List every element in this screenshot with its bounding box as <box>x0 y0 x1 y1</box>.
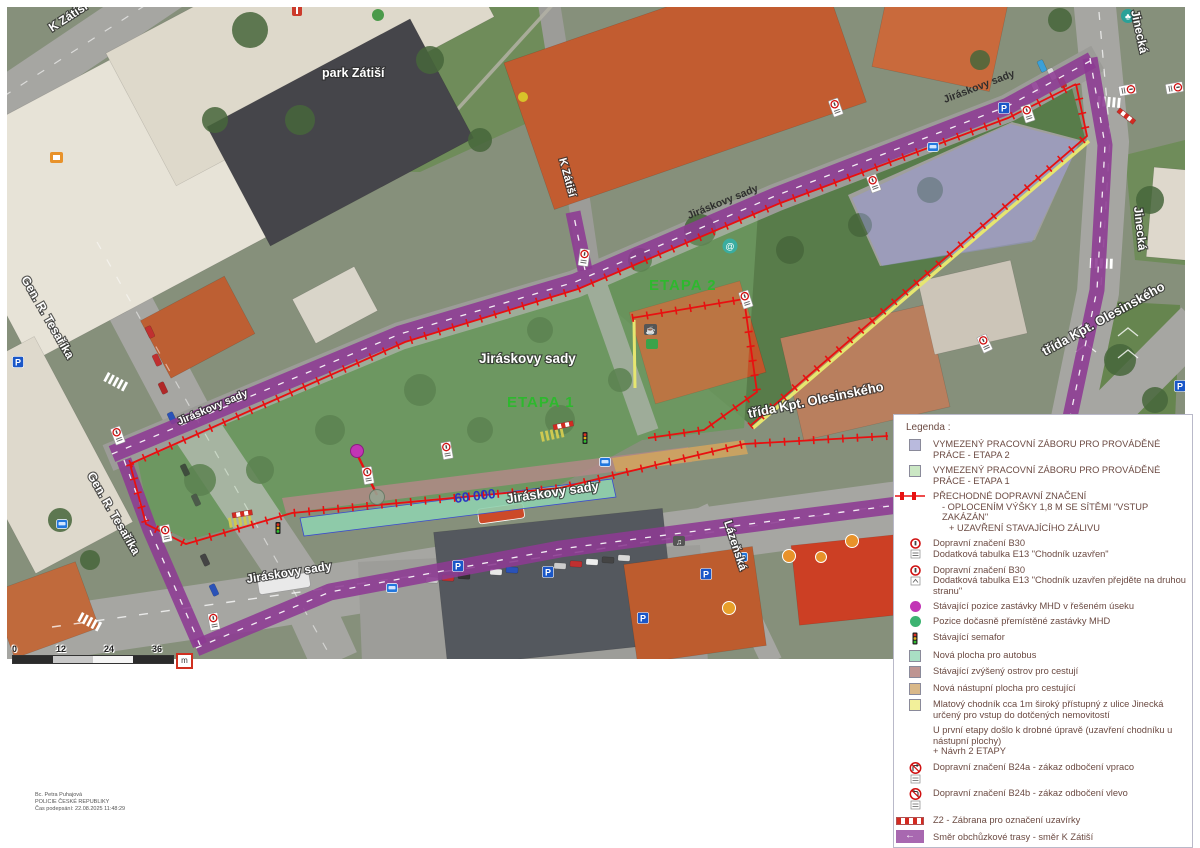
legend-text: - OPLOCENÍM VÝŠKY 1,8 M SE SÍTĚMI "VSTUP… <box>933 502 1186 523</box>
relocated-stop-dot <box>910 616 921 627</box>
flower-poi-icon <box>518 92 528 102</box>
existing-bus-stop-marker <box>351 445 364 458</box>
etapa1-swatch <box>909 465 921 477</box>
scale-tick: 36 <box>152 644 162 654</box>
scale-bar: 0 12 24 36 m <box>12 644 197 670</box>
legend-item: Z2 - Zábrana pro označení uzavírky <box>894 815 1186 826</box>
legend-item: PŘECHODNÉ DOPRAVNÍ ZNAČENÍ - OPLOCENÍM V… <box>894 491 1186 533</box>
key-service-icon <box>646 339 658 349</box>
legend-text: Stávající semafor <box>933 632 1186 643</box>
legend-item: ← Směr obchůzkové trasy - směr K Zátiší <box>894 830 1186 843</box>
legend-item: Nová nástupní plocha pro cestující <box>904 683 1186 695</box>
scale-bar-strip <box>12 655 174 664</box>
legend-text: Dopravní značení B30 <box>933 538 1186 549</box>
b24b-sign-icon <box>908 788 923 810</box>
legend-title: Legenda : <box>906 422 1186 433</box>
boarding-swatch <box>909 683 921 695</box>
legend-text: Dopravní značení B30 <box>933 565 1186 576</box>
bus-area-swatch <box>909 650 921 662</box>
legend-text: + UZAVŘENÍ STAVAJÍCÍHO ZÁLIVU <box>933 523 1186 534</box>
park-label: Jiráskovy sady <box>479 351 576 366</box>
legend-item: Mlatový chodník cca 1m široký přístupný … <box>904 699 1186 720</box>
legend-item: Stávající semafor <box>904 632 1186 645</box>
scale-tick: 24 <box>104 644 114 654</box>
pub-icon <box>783 550 796 563</box>
smiley-poi-icon <box>723 602 736 615</box>
pub-icon <box>816 552 827 563</box>
b24a-sign-icon <box>908 762 923 784</box>
existing-stop-dot <box>910 601 921 612</box>
snail-glyph: @ <box>725 242 734 252</box>
legend-text: Nová nástupní plocha pro cestující <box>933 683 1186 694</box>
legend-text: Stávající pozice zastávky MHD v řešeném … <box>933 601 1186 612</box>
coffee-glyph: ☕ <box>646 325 656 335</box>
legend-text: Stávající zvýšený ostrov pro cestují <box>933 666 1186 677</box>
legend-item: Pozice dočasně přemístěné zastávky MHD <box>904 616 1186 627</box>
scale-tick: 0 <box>12 644 17 654</box>
legend-text: U první etapy došlo k drobné úpravě (uza… <box>933 725 1186 746</box>
detour-direction-icon: ← <box>896 830 924 843</box>
legend-text: VYMEZENÝ PRACOVNÍ ZÁBORU PRO PROVÁDĚNÉ P… <box>933 465 1186 486</box>
music-glyph: ♫ <box>676 538 682 547</box>
legend-item: U první etapy došlo k drobné úpravě (uza… <box>904 725 1186 757</box>
legend-item: VYMEZENÝ PRACOVNÍ ZÁBORU PRO PROVÁDĚNÉ P… <box>904 439 1186 460</box>
signature-timestamp: Čas podepsání: 22.08.2025 11:48:29 <box>35 806 125 813</box>
legend-text: VYMEZENÝ PRACOVNÍ ZÁBORU PRO PROVÁDĚNÉ P… <box>933 439 1186 460</box>
yellow-footpath <box>634 320 635 388</box>
legend-text: Dopravní značení B24b - zákaz odbočení v… <box>933 788 1186 799</box>
legend-item: Dopravní značení B24b - zákaz odbočení v… <box>904 788 1186 810</box>
legend-text: Dopravní značení B24a - zákaz odbočení v… <box>933 762 1186 773</box>
scale-tick: 12 <box>56 644 66 654</box>
traffic-light-legend-icon <box>912 632 918 645</box>
legend-item: Dopravní značení B30 Dodatková tabulka E… <box>904 538 1186 560</box>
etapa2-label: ETAPA 2 <box>649 277 717 294</box>
scale-unit: m <box>176 653 193 669</box>
green-poi-icon <box>372 9 384 21</box>
legend-item: VYMEZENÝ PRACOVNÍ ZÁBORU PRO PROVÁDĚNÉ P… <box>904 465 1186 486</box>
legend-item: Dopravní značení B30 Dodatková tabulka E… <box>904 565 1186 597</box>
legend-panel: Legenda : VYMEZENÝ PRACOVNÍ ZÁBORU PRO P… <box>893 414 1193 848</box>
legend-item: Dopravní značení B24a - zákaz odbočení v… <box>904 762 1186 784</box>
fence-line-icon <box>895 491 925 501</box>
b30-sign-icon <box>909 565 922 587</box>
legend-text: Dodatková tabulka E13 "Chodník uzavřen p… <box>933 575 1186 596</box>
traffic-light-icon <box>276 522 281 534</box>
etapa2-swatch <box>909 439 921 451</box>
island-swatch <box>909 666 921 678</box>
pub-icon <box>846 535 859 548</box>
legend-item: Stávající zvýšený ostrov pro cestují <box>904 666 1186 678</box>
legend-text: Z2 - Zábrana pro označení uzavírky <box>933 815 1186 826</box>
plan-document-page: P <box>0 0 1200 848</box>
legend-text: Mlatový chodník cca 1m široký přístupný … <box>933 699 1186 720</box>
legend-text: Směr obchůzkové trasy - směr K Zátiší <box>933 832 1186 843</box>
legend-item: Nová plocha pro autobus <box>904 650 1186 662</box>
legend-text: Pozice dočasně přemístěné zastávky MHD <box>933 616 1186 627</box>
park-label: park Zátiší <box>322 66 385 80</box>
legend-item: Stávající pozice zastávky MHD v řešeném … <box>904 601 1186 612</box>
traffic-light-icon <box>583 432 588 444</box>
legend-text: Nová plocha pro autobus <box>933 650 1186 661</box>
b30-sign-icon <box>909 538 922 560</box>
signature-block: Bc. Petra Puhajová POLICIE ČESKÉ REPUBLI… <box>35 792 125 813</box>
legend-text: Dodatková tabulka E13 "Chodník uzavřen" <box>933 549 1186 560</box>
footpath-swatch <box>909 699 921 711</box>
etapa1-label: ETAPA 1 <box>507 394 575 411</box>
legend-text: PŘECHODNÉ DOPRAVNÍ ZNAČENÍ <box>933 491 1186 502</box>
relocated-bus-stop-marker <box>370 490 385 505</box>
z2-barrier-icon <box>896 817 924 825</box>
legend-text: + Návrh 2 ETAPY <box>933 746 1186 757</box>
